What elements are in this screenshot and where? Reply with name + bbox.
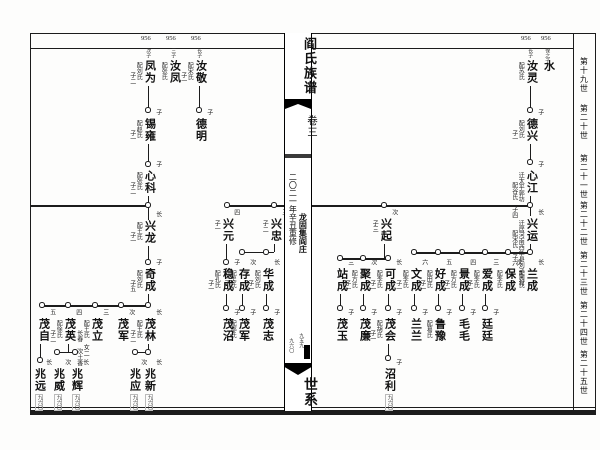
person-name: 茂军 [115, 318, 128, 342]
person-spouse-note: 配孔氏 [213, 270, 219, 288]
generation-label: 第二十世 [579, 104, 587, 140]
person-name: 兆应 [127, 368, 140, 392]
spine-page-left: 九六〇 [288, 338, 293, 353]
person-name: 茂会 [382, 318, 395, 342]
person-name: 兰成 [524, 268, 537, 292]
tree-connector-line [274, 244, 275, 252]
person-name: 爱成 [479, 268, 492, 292]
generation-label: 第二十五世 [579, 350, 587, 395]
person-order-note: 长子 [527, 48, 532, 58]
person-spouse-note: 迁太平郭坊 [517, 172, 523, 202]
person-spouse-note: 配苏氏 [517, 62, 523, 80]
branch-dot [435, 249, 441, 255]
person-spouse-note: 子二 [129, 72, 135, 84]
branch-dot [527, 202, 533, 208]
person-name: 茂英 [62, 318, 75, 342]
branch-dot [37, 357, 43, 363]
person-name: 心江 [524, 170, 537, 194]
person-birth-order: 长 [155, 211, 161, 217]
branch-dot [435, 305, 441, 311]
person-birth-order: 四 [75, 309, 81, 315]
person-name: 德明 [193, 118, 206, 142]
person-birth-order: 三 [102, 309, 108, 315]
branch-dot [385, 305, 391, 311]
person-birth-order: 次 [515, 259, 521, 265]
person-spouse-note: 子一 [129, 130, 135, 142]
person-spouse-note: 配张氏 [160, 62, 166, 80]
person-birth-order: 子 [233, 309, 239, 315]
person-spouse-note: 配谷氏 子四 [511, 182, 517, 218]
person-name: 德兴 [524, 118, 537, 142]
person-spouse-note: 配吴氏 [229, 270, 235, 288]
person-name: 兆辉 [69, 368, 82, 392]
continued-page-ref: 九六〇 [72, 394, 80, 411]
person-birth-order: 次 [391, 209, 397, 215]
branch-dot [385, 255, 391, 261]
person-birth-order: 子 [249, 309, 255, 315]
person-spouse-note: 配刘氏 [517, 120, 523, 138]
person-name: 汝凤 [167, 60, 180, 84]
person-name: 兆远 [32, 368, 45, 392]
branch-dot [411, 305, 417, 311]
source-page-number: 956 [191, 35, 201, 42]
branch-dot [482, 305, 488, 311]
branch-dot [381, 202, 387, 208]
person-birth-order: 子 [155, 259, 161, 265]
branch-dot [65, 302, 71, 308]
person-birth-order: 四 [469, 259, 475, 265]
person-spouse-note: 配刘氏 [135, 270, 141, 288]
person-name: 毛毛 [456, 318, 469, 342]
branch-dot [239, 305, 245, 311]
frame-bottom-thin [30, 407, 596, 408]
continued-page-ref: 九六〇 [130, 394, 138, 411]
person-name: 茂立 [89, 318, 102, 342]
person-birth-order: 子 [421, 309, 427, 315]
person-name: 鲁豫 [432, 318, 445, 342]
person-birth-order: 四 [233, 209, 239, 215]
person-birth-order: 子 [469, 309, 475, 315]
genealogy-book-page: 水保之子汝灵长子配苏氏德兴子配刘氏子一心江子迁太平郭坊配谷氏 子四兴运长迁居河南… [0, 0, 600, 450]
person-spouse-note: 配田氏 [425, 270, 431, 288]
person-spouse-note: 配刘氏 [135, 62, 141, 80]
person-birth-order: 子 [395, 359, 401, 365]
person-name: 兆新 [142, 368, 155, 392]
person-spouse-note: 配王氏 [135, 320, 141, 338]
branch-dot [360, 305, 366, 311]
frame-right [595, 33, 596, 411]
person-name: 景成 [456, 268, 469, 292]
person-spouse-note: 配李氏 [375, 270, 381, 288]
source-page-number: 956 [166, 35, 176, 42]
person-name: 茂志 [260, 318, 273, 342]
person-birth-order: 子 [537, 161, 543, 167]
margin-divider [573, 33, 574, 411]
person-birth-order: 子 [347, 309, 353, 315]
continued-page-ref: 九六〇 [145, 394, 153, 411]
person-birth-order: 三 [347, 259, 353, 265]
person-birth-order: 长 [273, 259, 279, 265]
person-birth-order: 子 [273, 309, 279, 315]
branch-dot [145, 161, 151, 167]
book-spine: 阎氏族谱 卷三 龙固集阎庄 二〇二一年辛丑重修 九五九 九六〇 世系 [284, 33, 312, 411]
person-name: 文成 [408, 268, 421, 292]
person-spouse-note: 配李氏 [472, 270, 478, 288]
person-name: 存成 [236, 268, 249, 292]
person-spouse-note: 配刘氏 [253, 270, 259, 288]
branch-dot [459, 249, 465, 255]
inner-top-rule-right [310, 48, 574, 49]
branch-dot [385, 355, 391, 361]
person-name: 汝灵 [524, 60, 537, 84]
person-name: 站成 [334, 268, 347, 292]
person-name: 锡雍 [142, 118, 155, 142]
person-spouse-note: 配张氏 [135, 172, 141, 190]
source-page-number: 956 [141, 35, 151, 42]
person-birth-order: 长 [155, 309, 161, 315]
person-spouse-note: 子三 [371, 220, 377, 232]
person-birth-order: 长 [82, 359, 88, 365]
tree-connector-line [68, 344, 69, 352]
branch-dot [337, 255, 343, 261]
person-birth-order: 长 [537, 259, 543, 265]
branch-dot [39, 302, 45, 308]
person-name: 兆威 [51, 368, 64, 392]
generation-label: 第二十四世 [579, 301, 587, 346]
branch-dot [145, 107, 151, 113]
branch-dot [337, 305, 343, 311]
person-name: 兰兰 [408, 318, 421, 342]
person-birth-order: 子 [155, 161, 161, 167]
branch-dot [527, 107, 533, 113]
frame-bottom-thick [30, 410, 596, 415]
person-birth-order: 六 [421, 259, 427, 265]
person-order-note: 三子 [170, 48, 175, 58]
person-name: 奇成 [142, 268, 155, 292]
person-birth-order: 长 [45, 359, 51, 365]
branch-dot [505, 249, 511, 255]
branch-dot [411, 249, 417, 255]
frame-top [30, 33, 596, 34]
person-spouse-note: 配李氏 [401, 270, 407, 288]
tree-connector-line [148, 196, 149, 220]
branch-dot [263, 249, 269, 255]
spine-mid-rule [285, 154, 311, 158]
person-name: 茂自 [36, 318, 49, 342]
tree-connector-line [242, 252, 274, 253]
branch-dot [72, 349, 78, 355]
person-name: 兴忠 [268, 218, 281, 242]
person-birth-order: 子 [492, 309, 498, 315]
person-spouse-note: 配赵氏 [135, 120, 141, 138]
branch-dot [92, 302, 98, 308]
frame-left [30, 33, 31, 411]
person-birth-order: 长 [537, 209, 543, 215]
person-spouse-note: 子二 [129, 182, 135, 194]
branch-dot [54, 349, 60, 355]
person-birth-order: 次 [64, 359, 70, 365]
person-order-note: 长子 [196, 48, 201, 58]
person-name: 兴起 [378, 218, 391, 242]
person-name: 茂玉 [334, 318, 347, 342]
spine-section: 世系 [290, 377, 316, 407]
continued-page-ref: 九六〇 [385, 394, 393, 411]
person-birth-order: 子 [155, 109, 161, 115]
person-birth-order: 子 [445, 309, 451, 315]
person-spouse-note: 子一 [223, 280, 229, 292]
branch-dot [223, 259, 229, 265]
person-name: 汝敬 [193, 60, 206, 84]
person-name: 聚成 [357, 268, 370, 292]
branch-dot [527, 249, 533, 255]
person-spouse-note: 子二 [129, 330, 135, 342]
person-spouse-note: 子一 [207, 280, 213, 292]
person-name: 好成 [432, 268, 445, 292]
person-name: 保成 [502, 268, 515, 292]
person-birth-order: 子 [395, 309, 401, 315]
person-birth-order: 子 [233, 259, 239, 265]
person-spouse-note: 配宋氏 [186, 62, 192, 80]
person-name: 廷廷 [479, 318, 492, 342]
spine-page-right: 九五九 [298, 333, 303, 348]
person-order-note: 次子 [145, 48, 150, 58]
branch-dot [223, 305, 229, 311]
person-spouse-note: 配王氏 女二 [82, 320, 88, 356]
person-name: 凤为 [142, 60, 155, 84]
branch-dot [482, 249, 488, 255]
branch-dot [196, 107, 202, 113]
spine-volume: 卷三 [291, 115, 317, 138]
person-birth-order: 次 [249, 259, 255, 265]
tree-connector-line [30, 205, 148, 207]
person-spouse-note: 配方氏 [350, 270, 356, 288]
fishtail-ornament-bottom [285, 363, 311, 375]
branch-dot [459, 305, 465, 311]
person-birth-order: 五 [445, 259, 451, 265]
spine-edition: 二〇二一年辛丑重修 [288, 173, 296, 245]
person-spouse-note: 配胡氏 [375, 320, 381, 338]
person-spouse-note: 子一 [180, 72, 186, 84]
branch-dot [145, 202, 151, 208]
person-spouse-note: 子一 [213, 220, 219, 232]
person-birth-order: 子 [370, 309, 376, 315]
branch-dot [263, 305, 269, 311]
person-name: 兴龙 [142, 220, 155, 244]
generation-label: 第十九世 [579, 57, 587, 93]
branch-dot [527, 159, 533, 165]
person-spouse-note: 配徐氏 [55, 320, 61, 338]
person-name: 茂林 [142, 318, 155, 342]
branch-dot [271, 202, 277, 208]
person-name: 兴运 [524, 218, 537, 242]
person-birth-order: 长 [395, 259, 401, 265]
person-birth-order: 次 [140, 359, 146, 365]
branch-dot [224, 202, 230, 208]
branch-dot [145, 302, 151, 308]
person-spouse-note: 配方氏 [449, 270, 455, 288]
person-birth-order: 次 [128, 309, 134, 315]
person-name: 心科 [142, 170, 155, 194]
branch-dot [118, 302, 124, 308]
person-birth-order: 次 [370, 259, 376, 265]
person-spouse-note: 配刘氏 [517, 270, 523, 288]
source-page-number: 956 [521, 35, 531, 42]
branch-dot [239, 249, 245, 255]
branch-dot [360, 255, 366, 261]
person-birth-order: 长 [155, 359, 161, 365]
person-spouse-note: 子一 [129, 232, 135, 244]
branch-dot [145, 349, 151, 355]
person-birth-order: 三 [492, 259, 498, 265]
person-birth-order: 五 [49, 309, 55, 315]
spine-title: 阎氏族谱 [290, 37, 316, 95]
person-name: 沼利 [382, 368, 395, 392]
continued-page-ref: 九六〇 [35, 394, 43, 411]
person-name: 兴元 [220, 218, 233, 242]
person-spouse-note: 子二 [261, 220, 267, 232]
person-birth-order: 子 [537, 109, 543, 115]
person-spouse-note: 子五 [129, 280, 135, 292]
person-name: 茂军 [236, 318, 249, 342]
person-birth-order: 子 [206, 109, 212, 115]
fishtail-ornament-top [285, 99, 311, 109]
person-spouse-note: 配王氏 [135, 222, 141, 240]
generation-label: 第二十一世 [579, 154, 587, 199]
branch-dot [145, 259, 151, 265]
tree-connector-line [308, 205, 530, 207]
continued-page-ref: 九六〇 [54, 394, 62, 411]
generation-label: 第二十三世 [579, 251, 587, 296]
person-name: 可成 [382, 268, 395, 292]
inner-top-rule-left [30, 48, 284, 49]
person-spouse-note: 子一 [511, 130, 517, 142]
person-spouse-note: 配葛氏 [425, 320, 431, 338]
person-name: 茂廉 [357, 318, 370, 342]
branch-dot [132, 349, 138, 355]
source-page-number: 956 [541, 35, 551, 42]
tree-connector-line [227, 205, 286, 207]
person-name: 华成 [260, 268, 273, 292]
spine-black-tab [304, 345, 310, 359]
person-spouse-note: 配李氏 [495, 270, 501, 288]
spine-place: 龙固集阎庄 [298, 213, 306, 253]
generation-label: 第二十二世 [579, 201, 587, 246]
person-spouse-note: 配邵氏 [229, 320, 235, 338]
person-order-note: 保之子 [544, 48, 549, 63]
